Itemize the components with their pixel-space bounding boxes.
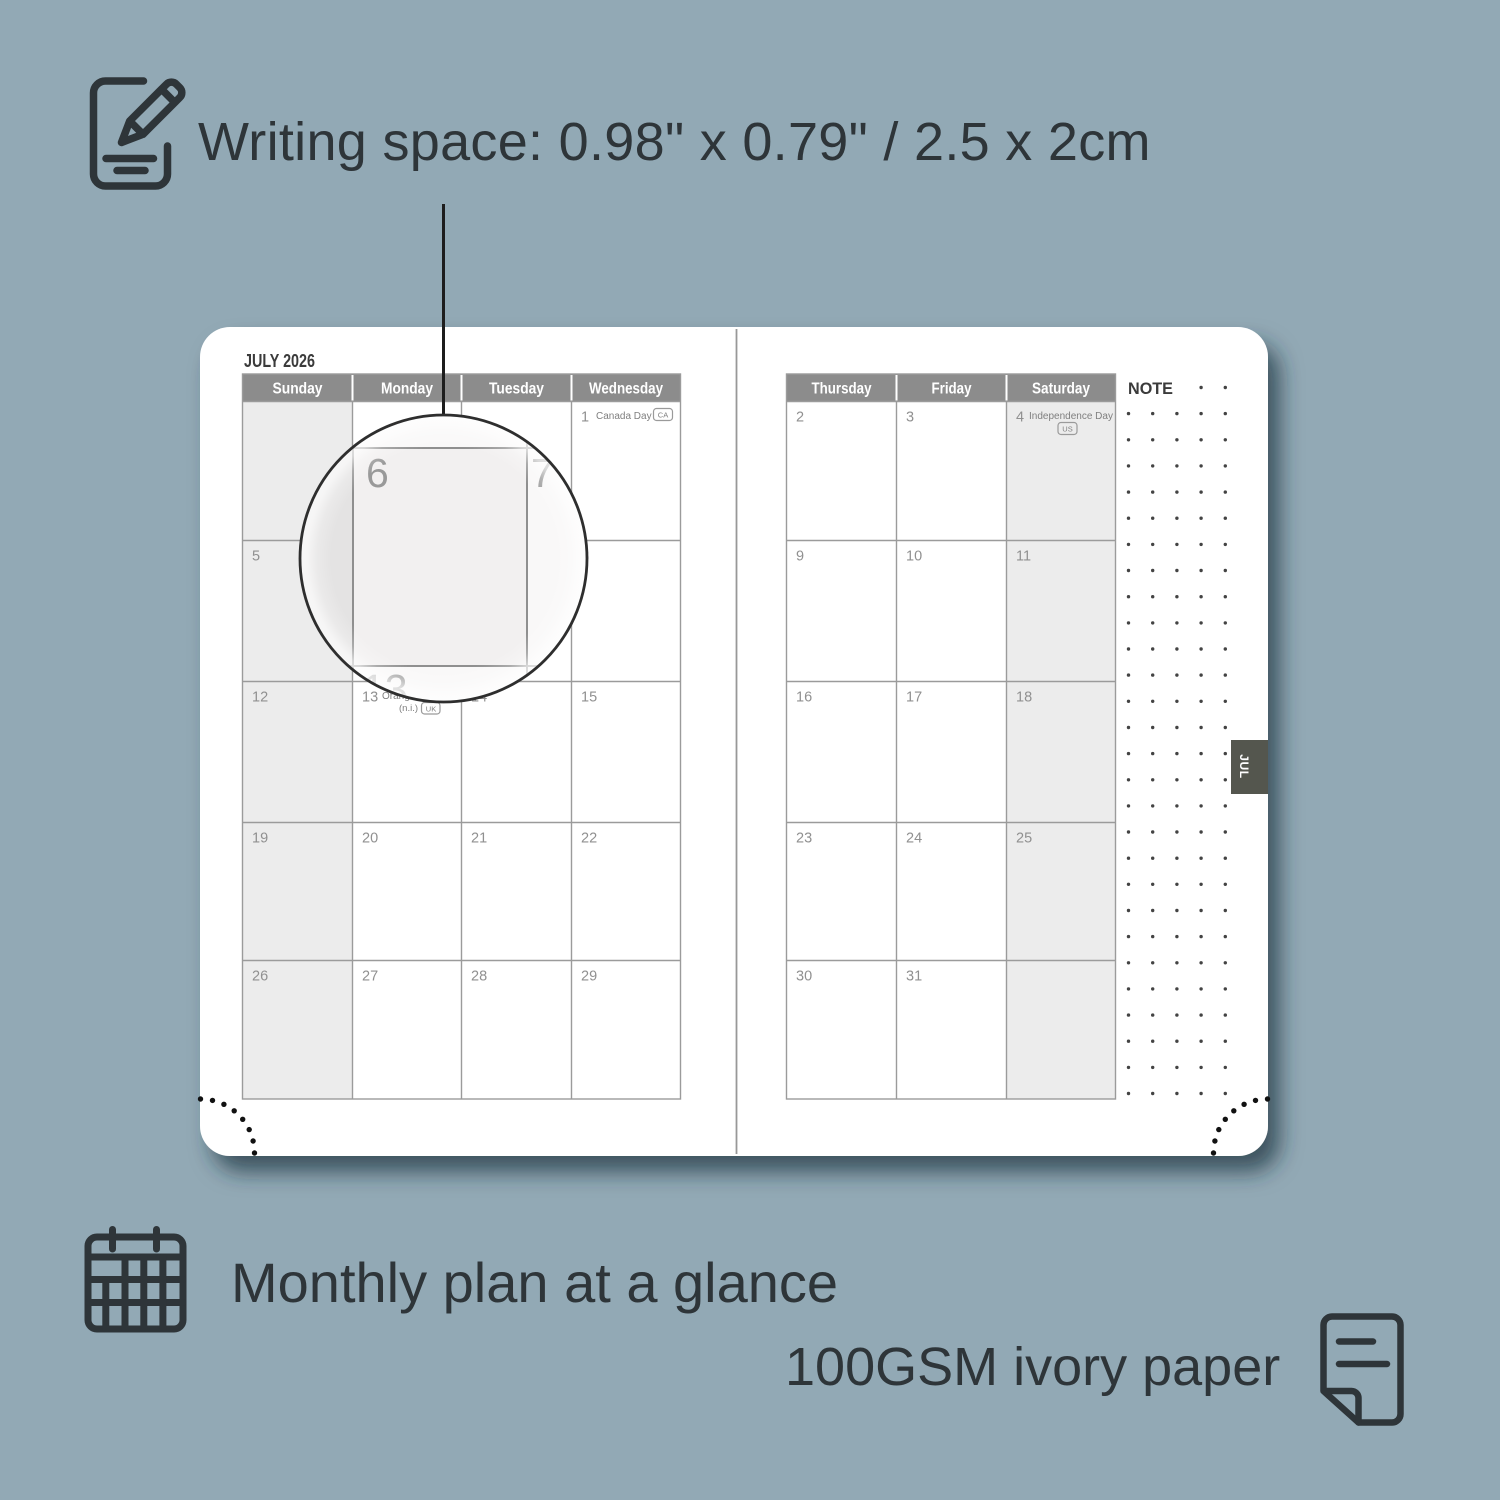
svg-text:Independence Day: Independence Day xyxy=(1029,411,1113,422)
svg-text:19: 19 xyxy=(252,831,268,847)
svg-text:4: 4 xyxy=(1016,410,1024,426)
svg-text:(n.i.): (n.i.) xyxy=(399,703,418,714)
svg-text:25: 25 xyxy=(1016,831,1032,847)
svg-text:27: 27 xyxy=(362,969,378,985)
svg-text:100GSM ivory paper: 100GSM ivory paper xyxy=(785,1337,1280,1397)
svg-text:28: 28 xyxy=(471,969,487,985)
svg-text:12: 12 xyxy=(252,690,268,706)
svg-text:18: 18 xyxy=(1016,690,1032,706)
svg-text:13: 13 xyxy=(362,690,378,706)
svg-text:23: 23 xyxy=(796,831,812,847)
svg-text:24: 24 xyxy=(906,831,922,847)
svg-text:3: 3 xyxy=(906,410,914,426)
svg-text:US: US xyxy=(1062,425,1072,434)
svg-text:UK: UK xyxy=(426,705,436,714)
svg-text:5: 5 xyxy=(252,549,260,565)
svg-text:Tuesday: Tuesday xyxy=(489,381,544,398)
svg-text:JULY 2026: JULY 2026 xyxy=(244,350,315,371)
svg-text:Monthly plan at a glance: Monthly plan at a glance xyxy=(231,1251,838,1314)
svg-text:Saturday: Saturday xyxy=(1032,381,1090,398)
svg-text:Writing space: 0.98" x 0.79" /: Writing space: 0.98" x 0.79" / 2.5 x 2cm xyxy=(198,112,1151,172)
svg-text:20: 20 xyxy=(362,831,378,847)
svg-text:NOTE: NOTE xyxy=(1128,379,1173,398)
svg-text:30: 30 xyxy=(796,969,812,985)
svg-text:26: 26 xyxy=(252,969,268,985)
svg-text:Canada Day: Canada Day xyxy=(596,411,652,422)
svg-text:10: 10 xyxy=(906,549,922,565)
svg-text:Sunday: Sunday xyxy=(273,381,323,398)
svg-text:31: 31 xyxy=(906,969,922,985)
svg-text:21: 21 xyxy=(471,831,487,847)
svg-text:16: 16 xyxy=(796,690,812,706)
svg-text:11: 11 xyxy=(1016,549,1031,565)
svg-text:Friday: Friday xyxy=(932,381,972,398)
svg-text:15: 15 xyxy=(581,690,597,706)
svg-text:2: 2 xyxy=(796,410,804,426)
svg-text:Monday: Monday xyxy=(381,381,433,398)
svg-text:29: 29 xyxy=(581,969,597,985)
svg-text:JUL: JUL xyxy=(1237,754,1251,778)
svg-text:9: 9 xyxy=(796,549,804,565)
svg-text:Thursday: Thursday xyxy=(812,381,872,398)
svg-text:22: 22 xyxy=(581,831,597,847)
svg-text:1: 1 xyxy=(581,410,589,426)
svg-text:CA: CA xyxy=(658,411,668,420)
svg-text:17: 17 xyxy=(906,690,922,706)
svg-text:Wednesday: Wednesday xyxy=(589,381,663,398)
